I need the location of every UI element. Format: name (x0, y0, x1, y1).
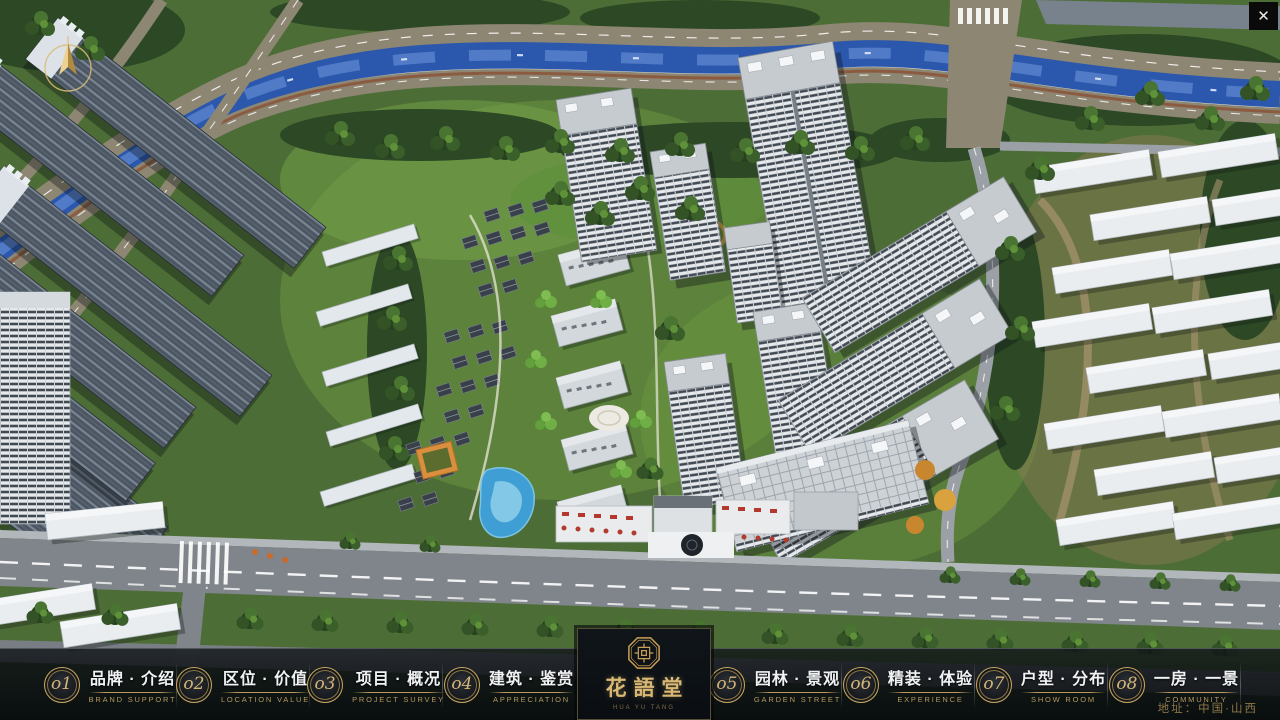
gold-divider (754, 692, 841, 693)
menu-number-badge: o7 (976, 667, 1012, 703)
menu-number-badge: o6 (843, 667, 879, 703)
menu-item-title: 户型 · 分布 (1021, 665, 1106, 689)
menu-item-subtitle: PROJECT SURVEY (352, 695, 445, 704)
presentation-window: ✕ o1 品牌 · 介绍BRAND SUPPORT o2 区位 · 价值LOCA… (0, 0, 1280, 720)
gold-divider (89, 692, 177, 693)
menu-item-brand-intro[interactable]: o1 品牌 · 介绍BRAND SUPPORT (44, 665, 176, 704)
menu-item-title: 项目 · 概况 (356, 665, 441, 689)
menu-number-badge: o3 (307, 667, 343, 703)
menu-item-interior-experience[interactable]: o6 精装 · 体验EXPERIENCE (842, 665, 974, 704)
menu-item-subtitle: LOCATION VALUE (221, 695, 310, 704)
gold-divider (221, 692, 310, 693)
menu-item-subtitle: BRAND SUPPORT (89, 695, 177, 704)
menu-item-title: 品牌 · 介绍 (90, 665, 175, 689)
gold-divider (352, 692, 445, 693)
menu-item-room-view[interactable]: o8 一房 · 一景COMMUNITY (1108, 665, 1240, 704)
menu-item-title: 区位 · 价值 (223, 665, 308, 689)
project-title: 花語堂 (599, 672, 690, 702)
gold-divider (489, 692, 574, 693)
project-title-caption: HUA YU TANG (613, 705, 675, 711)
close-button[interactable]: ✕ (1249, 2, 1278, 30)
project-seal-icon (627, 636, 661, 670)
site-plan-3d-view[interactable] (0, 0, 1280, 720)
compass-north-icon (36, 34, 100, 98)
project-logo-panel[interactable]: 花語堂 HUA YU TANG (577, 628, 711, 720)
menu-item-title: 建筑 · 鉴赏 (489, 665, 574, 689)
menu-item-location-value[interactable]: o2 区位 · 价值LOCATION VALUE (177, 665, 309, 704)
menu-item-subtitle: GARDEN STREET (754, 695, 841, 704)
menu-item-garden-landscape[interactable]: o5 园林 · 景观GARDEN STREET (709, 665, 841, 704)
menu-item-title: 精装 · 体验 (888, 665, 973, 689)
gold-divider (1021, 692, 1106, 693)
menu-item-floorplan-distribution[interactable]: o7 户型 · 分布SHOW ROOM (975, 665, 1107, 704)
menu-item-subtitle: SHOW ROOM (1031, 695, 1096, 704)
menu-number-badge: o5 (709, 667, 745, 703)
menu-number-badge: o4 (444, 667, 480, 703)
gold-divider (1154, 692, 1239, 693)
menu-item-project-survey[interactable]: o3 项目 · 概况PROJECT SURVEY (310, 665, 442, 704)
menu-number-badge: o8 (1109, 667, 1145, 703)
project-address: 地址：中国·山西 (1158, 700, 1258, 716)
gold-divider (888, 692, 973, 693)
menu-item-subtitle: APPRECIATION (493, 695, 570, 704)
menu-item-subtitle: EXPERIENCE (897, 695, 963, 704)
menu-number-badge: o2 (176, 667, 212, 703)
menu-item-architecture[interactable]: o4 建筑 · 鉴赏APPRECIATION (443, 665, 575, 704)
menu-item-title: 园林 · 景观 (755, 665, 840, 689)
menu-item-title: 一房 · 一景 (1154, 665, 1239, 689)
menu-number-badge: o1 (44, 667, 80, 703)
